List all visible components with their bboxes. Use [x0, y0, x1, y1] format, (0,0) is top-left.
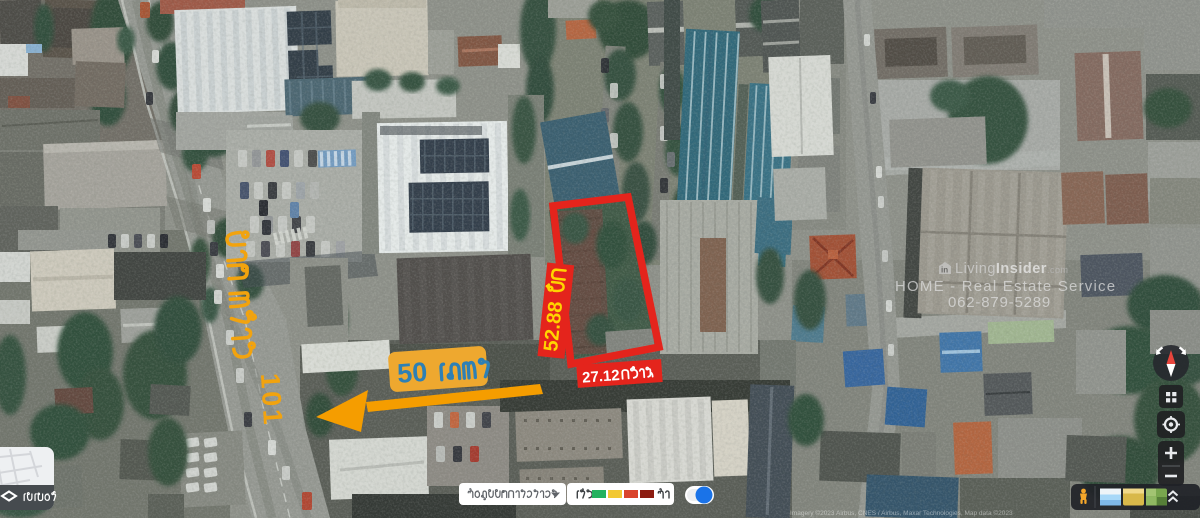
svg-text:101: 101	[255, 372, 288, 428]
svg-text:in: in	[941, 266, 948, 275]
svg-text:HOME - Real Estate Service: HOME - Real Estate Service	[895, 278, 1116, 295]
svg-text:27.12: 27.12	[582, 367, 621, 387]
svg-text:062-879-5289: 062-879-5289	[948, 294, 1051, 311]
svg-text:Imagery ©2023 Airbus, CNES / A: Imagery ©2023 Airbus, CNES / Airbus, Max…	[790, 509, 1013, 517]
svg-text:50: 50	[396, 357, 428, 389]
